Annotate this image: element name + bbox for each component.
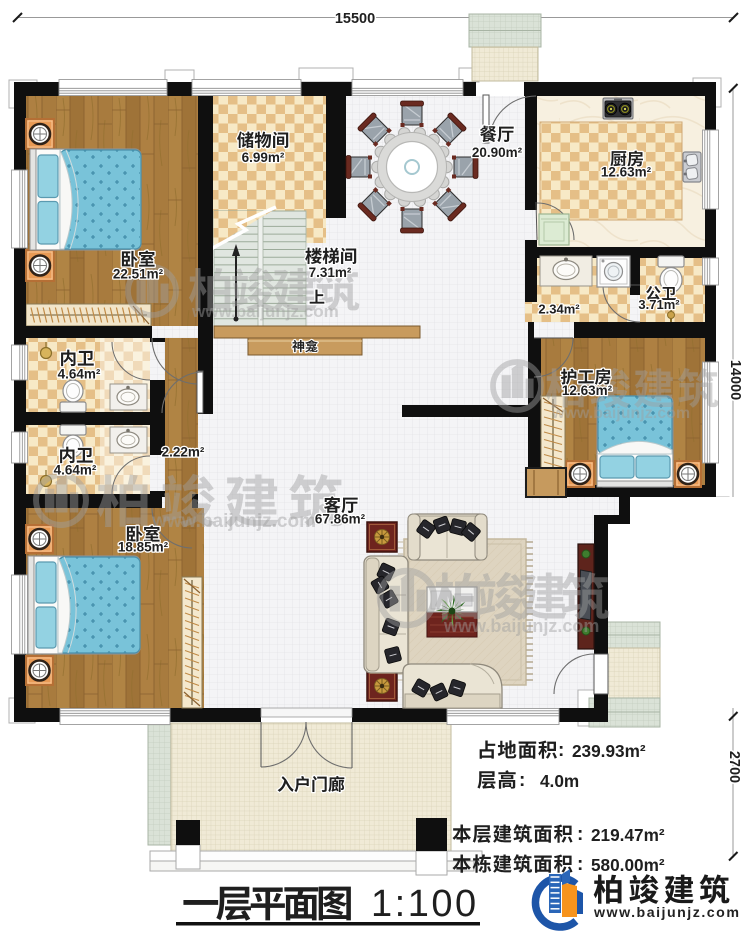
- svg-text:2.22m²: 2.22m²: [162, 445, 205, 460]
- svg-text:4.64m²: 4.64m²: [58, 367, 101, 382]
- svg-text:2.34m²: 2.34m²: [538, 302, 580, 317]
- svg-text::: :: [558, 740, 564, 761]
- svg-text:22.51m²: 22.51m²: [113, 267, 164, 282]
- svg-text:67.86m²: 67.86m²: [315, 512, 366, 527]
- svg-text:www.baijunjz.com: www.baijunjz.com: [151, 511, 316, 532]
- svg-text:12.63m²: 12.63m²: [562, 383, 613, 398]
- svg-text::: :: [519, 770, 525, 791]
- svg-text:12.63m²: 12.63m²: [601, 165, 652, 180]
- svg-text:14000: 14000: [727, 360, 743, 400]
- svg-text:18.85m²: 18.85m²: [118, 540, 169, 555]
- svg-text:1:100: 1:100: [371, 883, 479, 925]
- svg-text::: :: [577, 824, 583, 845]
- svg-text:580.00m²: 580.00m²: [591, 855, 665, 875]
- svg-text:15500: 15500: [335, 11, 375, 27]
- svg-text:6.99m²: 6.99m²: [242, 150, 285, 165]
- svg-text:3.71m²: 3.71m²: [638, 297, 680, 312]
- svg-text:www.baijunjz.com: www.baijunjz.com: [593, 905, 740, 921]
- svg-text:20.90m²: 20.90m²: [472, 145, 523, 160]
- svg-text:7.31m²: 7.31m²: [309, 265, 352, 280]
- svg-text:2700: 2700: [726, 751, 742, 783]
- svg-text:www.baijunjz.com: www.baijunjz.com: [551, 405, 690, 422]
- svg-text:239.93m²: 239.93m²: [572, 741, 646, 761]
- svg-text:4.64m²: 4.64m²: [54, 463, 97, 478]
- svg-text:www.baijunjz.com: www.baijunjz.com: [443, 616, 599, 636]
- svg-text::: :: [577, 854, 583, 875]
- svg-text:4.0m: 4.0m: [540, 771, 579, 791]
- svg-text:219.47m²: 219.47m²: [591, 825, 665, 845]
